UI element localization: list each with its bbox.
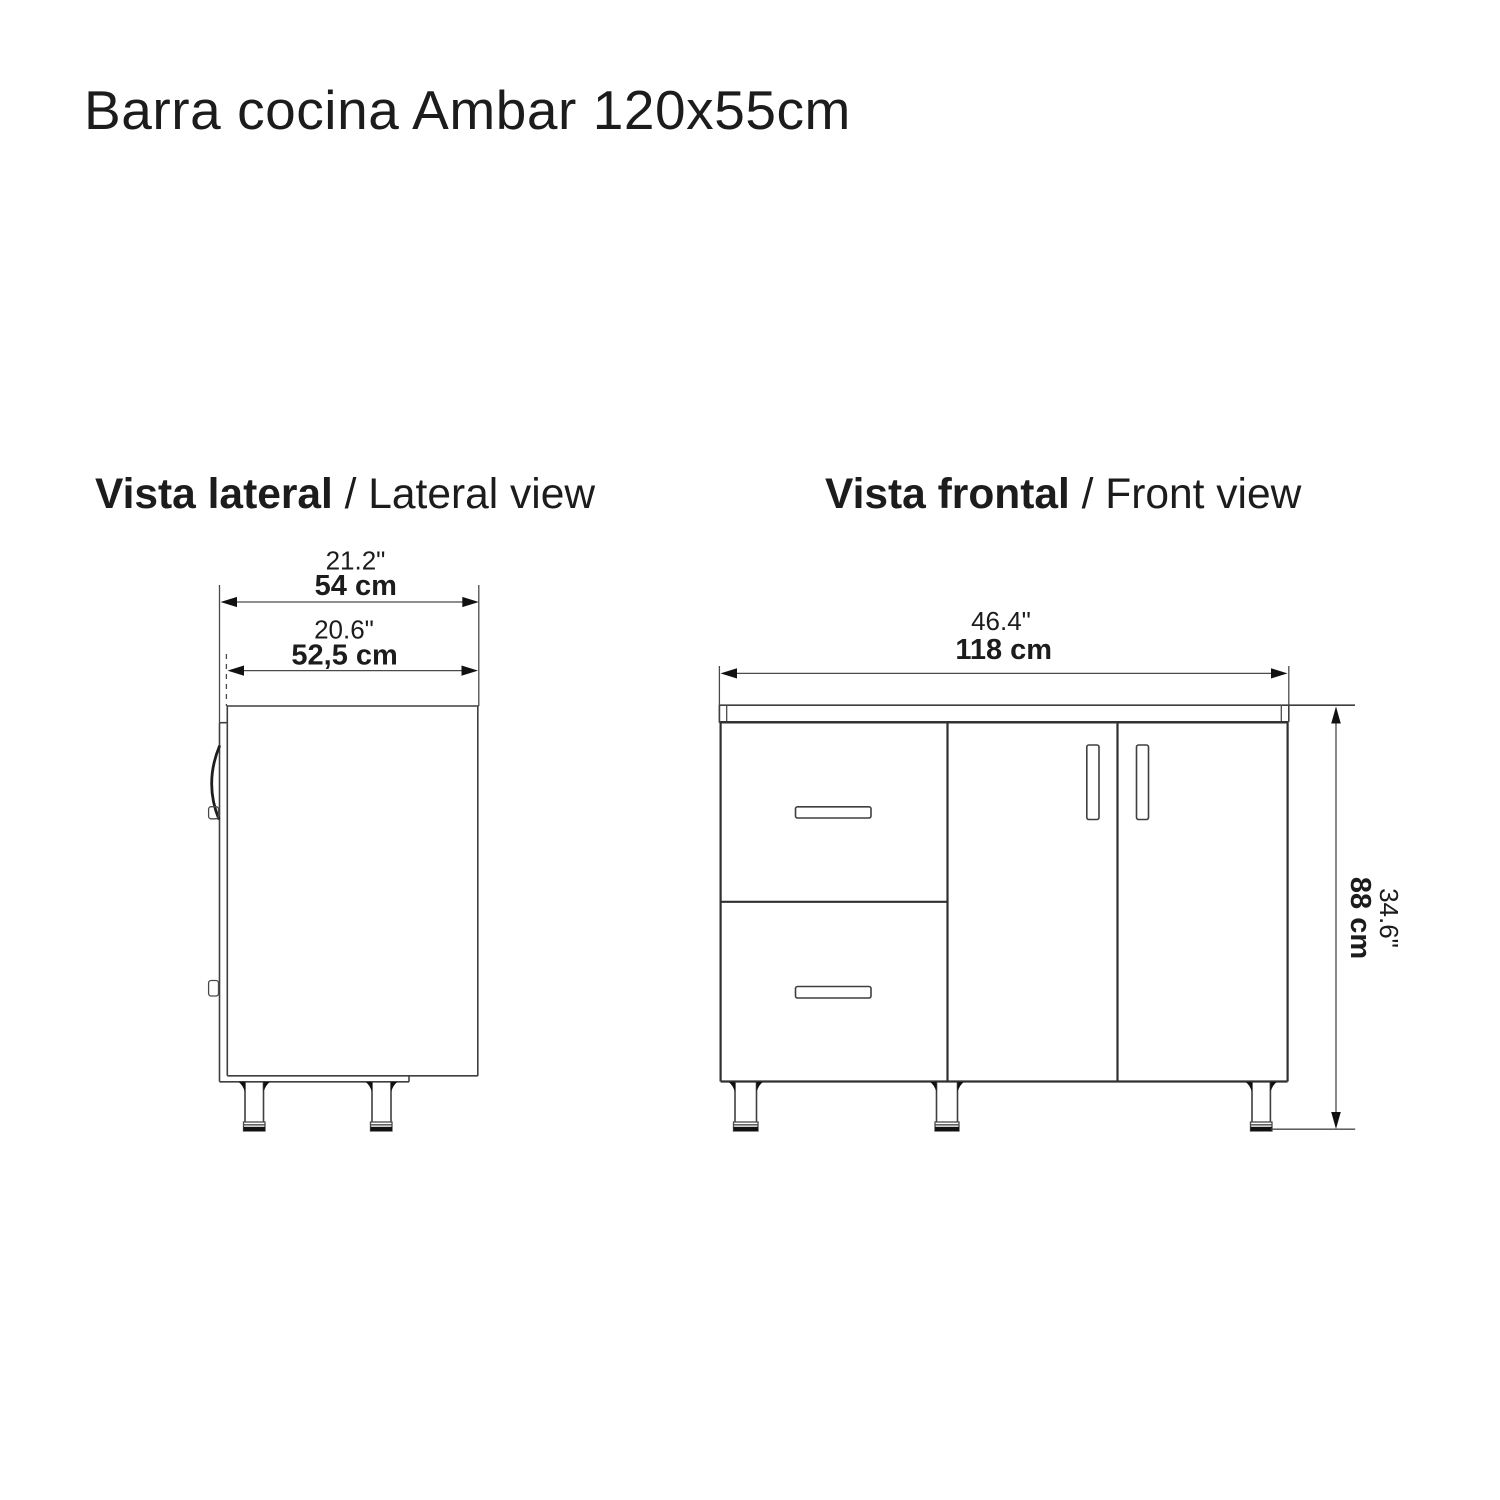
svg-text:88 cm: 88 cm xyxy=(1344,877,1376,959)
svg-text:Barra cocina Ambar 120x55cm: Barra cocina Ambar 120x55cm xyxy=(84,79,851,141)
svg-text:52,5 cm: 52,5 cm xyxy=(291,639,397,671)
svg-text:34.6": 34.6" xyxy=(1374,888,1404,948)
svg-text:118 cm: 118 cm xyxy=(955,634,1052,666)
svg-text:54 cm: 54 cm xyxy=(315,570,397,602)
svg-text:Vista frontal / Front view: Vista frontal / Front view xyxy=(825,471,1302,518)
svg-text:46.4": 46.4" xyxy=(971,606,1031,636)
svg-text:Vista lateral / Lateral view: Vista lateral / Lateral view xyxy=(95,471,595,518)
